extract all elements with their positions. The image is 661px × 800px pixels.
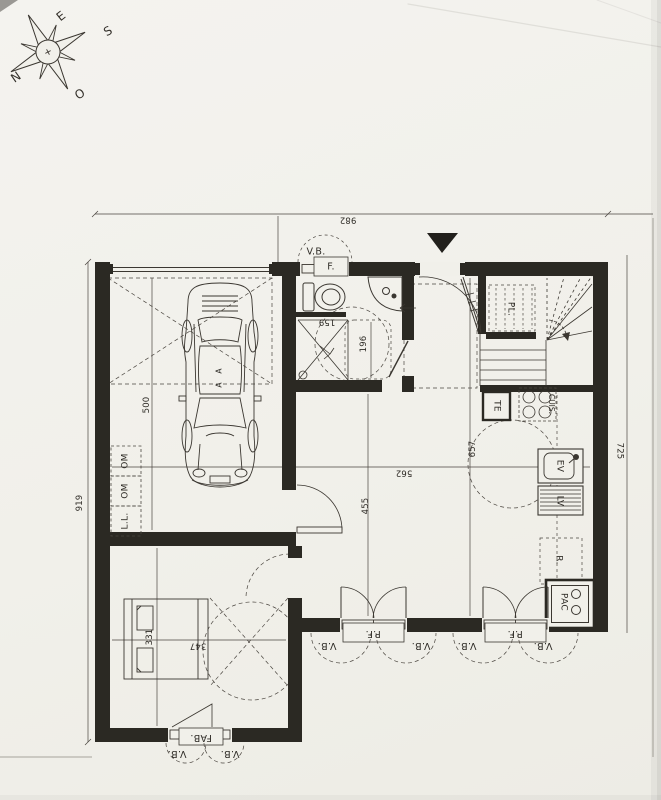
dim-living-length: 657 xyxy=(469,441,478,458)
car-mark-2: A xyxy=(215,382,223,387)
kitchen-sink-label: EV xyxy=(555,460,564,472)
heat-pump-label: PAC xyxy=(559,593,568,611)
entrance-arrow xyxy=(427,233,458,253)
corner-sink-icon xyxy=(368,277,402,311)
dim-bedroom-width: 347 xyxy=(190,641,207,650)
shutter-label-4: V.B. xyxy=(533,640,552,650)
bedroom-shutter-label-1: V.B. xyxy=(167,748,186,758)
staircase xyxy=(480,276,592,386)
shower-icon xyxy=(298,320,348,380)
window-f-label: F. xyxy=(327,262,335,272)
fridge-label: R. xyxy=(554,555,563,564)
closet-label: PL. xyxy=(506,302,515,316)
floor-plan-sheet: E S N O 982 919 725 500 657 562 455 331 … xyxy=(0,0,661,800)
heat-pump-unit xyxy=(546,580,594,628)
bedroom-window-label: FAB. xyxy=(190,732,212,742)
garage-door xyxy=(110,262,272,276)
dim-garage-depth: 500 xyxy=(143,397,152,414)
shutter-label-1: V.B. xyxy=(317,640,336,650)
french-door-1-label: P.F. xyxy=(365,628,380,638)
toilet-icon xyxy=(303,283,345,311)
washing-machine-label: L.L. xyxy=(122,513,131,530)
shutter-label-2: V.B. xyxy=(411,640,430,650)
shutter-label-3: V.B. xyxy=(457,640,476,650)
bedroom-shutter-label-2: V.B. xyxy=(220,748,239,758)
walls xyxy=(95,262,608,742)
garage-storage-cross xyxy=(108,278,272,384)
bed-icon xyxy=(124,599,208,679)
dim-right-height: 725 xyxy=(615,443,624,460)
dim-living-partial: 455 xyxy=(362,498,371,515)
dishwasher-label: LV xyxy=(555,496,564,507)
dim-living-width: 562 xyxy=(396,468,413,477)
plan-linework xyxy=(0,0,661,800)
compass-rose xyxy=(0,0,105,109)
car-mark-1: A xyxy=(215,368,223,373)
garage-living-door xyxy=(297,485,342,533)
entry-clearance xyxy=(404,284,477,388)
electrical-panel-label: TE xyxy=(492,400,501,412)
shutter-label-top: V.B. xyxy=(306,247,325,257)
bedroom-wardrobe-cross xyxy=(210,554,290,686)
dim-bath-length: 196 xyxy=(360,336,369,353)
dim-bedroom-length: 331 xyxy=(146,629,155,646)
dim-bath-width: 159 xyxy=(319,317,336,326)
french-door-2-label: P.F. xyxy=(507,628,522,638)
dim-overall-width: 982 xyxy=(340,215,357,224)
bin-1-label: OM xyxy=(122,453,131,468)
bin-2-label: OM xyxy=(122,483,131,498)
dim-left-height: 919 xyxy=(76,495,85,512)
hob-label: CUIS. xyxy=(547,394,555,414)
